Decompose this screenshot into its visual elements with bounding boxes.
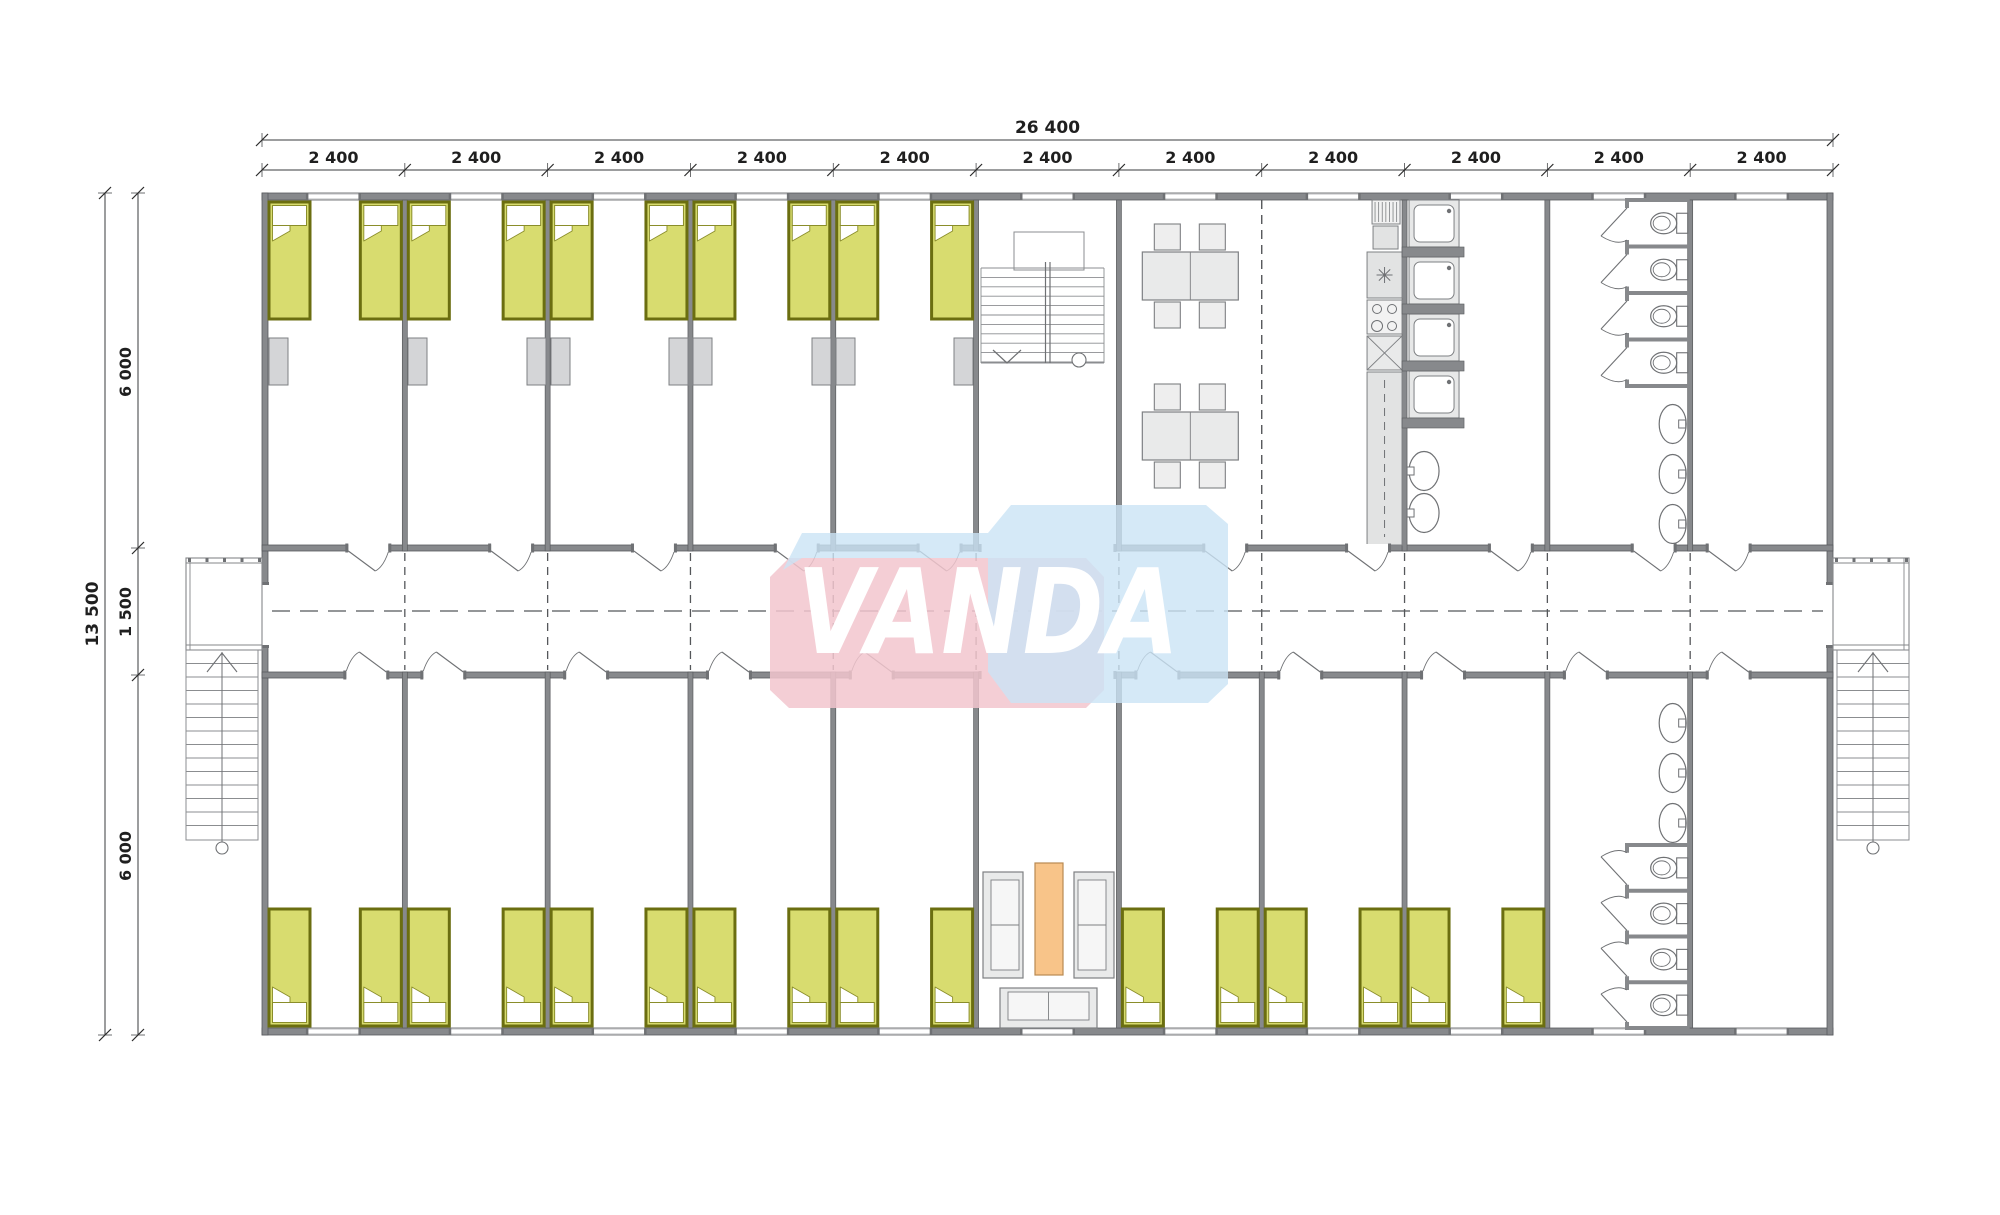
door-jamb	[1420, 671, 1423, 680]
window	[1307, 1029, 1359, 1034]
door-leaf	[634, 551, 661, 571]
window-jamb	[1787, 1028, 1790, 1035]
stall-door-arc	[1601, 376, 1627, 382]
door-jamb	[774, 544, 777, 553]
stall-partition	[1625, 1026, 1690, 1030]
door-jamb	[1606, 671, 1609, 680]
window-jamb	[1306, 1028, 1309, 1035]
window-jamb	[1501, 1028, 1504, 1035]
window	[593, 1029, 645, 1034]
interior-wall-bottom	[831, 672, 836, 1028]
window-jamb	[1163, 1028, 1166, 1035]
pillow	[935, 1003, 969, 1023]
door-arc	[518, 552, 531, 571]
window-jamb	[1734, 1028, 1737, 1035]
window-jamb	[787, 193, 790, 200]
porch	[186, 558, 262, 650]
door-arc	[1709, 652, 1722, 671]
pillow	[507, 206, 541, 226]
wardrobe	[693, 338, 712, 385]
rail-post	[1853, 558, 1856, 562]
window-jamb	[358, 1028, 361, 1035]
window-jamb	[449, 193, 452, 200]
door-erase	[634, 544, 674, 552]
interior-wall-bottom	[1402, 672, 1407, 1028]
window-jamb	[930, 1028, 933, 1035]
pillow	[840, 1003, 874, 1023]
door-jamb	[1674, 544, 1677, 553]
stall-partition	[1625, 980, 1690, 984]
window-jamb	[1020, 193, 1023, 200]
window-jamb	[644, 1028, 647, 1035]
chair	[1199, 224, 1225, 250]
stall-wall	[1625, 293, 1629, 301]
door-jamb	[388, 544, 391, 553]
window-jamb	[1215, 1028, 1218, 1035]
window-jamb	[1163, 193, 1166, 200]
dimension-module: 2 400	[1308, 148, 1358, 167]
window-jamb	[1501, 193, 1504, 200]
stall-door	[1601, 857, 1627, 885]
shower-partition	[1402, 247, 1464, 257]
door-jamb	[488, 544, 491, 553]
door-jamb	[706, 671, 709, 680]
window	[879, 1029, 931, 1034]
window-jamb	[358, 193, 361, 200]
stair-pole	[216, 842, 228, 854]
window-jamb	[501, 193, 504, 200]
stall-door-arc	[1601, 896, 1627, 902]
toilet-bowl	[1651, 352, 1677, 373]
basin-tap	[1679, 420, 1686, 428]
door-arc	[423, 652, 436, 671]
window	[1022, 194, 1074, 199]
door-leaf	[348, 551, 375, 571]
pillow	[364, 206, 398, 226]
wardrobe	[527, 338, 546, 385]
door-erase	[348, 544, 388, 552]
toilet-tank	[1677, 260, 1688, 280]
door-jamb	[1706, 544, 1709, 553]
door-arc	[1566, 652, 1579, 671]
window-jamb	[877, 193, 880, 200]
door-arc	[1661, 552, 1674, 571]
door-erase	[346, 671, 386, 679]
door-arc	[1423, 652, 1436, 671]
basin-tap	[1407, 467, 1414, 475]
door-erase	[1634, 544, 1674, 552]
basin-tap	[1679, 819, 1686, 827]
pillow	[935, 206, 969, 226]
basin-tap	[1679, 719, 1686, 727]
rail-post	[241, 558, 244, 562]
window-jamb	[1073, 193, 1076, 200]
interior-wall-top	[1545, 200, 1550, 551]
pillow	[507, 1003, 541, 1023]
window-jamb	[501, 1028, 504, 1035]
door-erase	[566, 671, 606, 679]
dimension-depth-segment: 1 500	[116, 587, 135, 637]
window	[1450, 1029, 1502, 1034]
interior-wall-bottom	[1545, 672, 1550, 1028]
window	[879, 194, 931, 199]
interior-wall-bottom	[1259, 672, 1264, 1028]
door-jamb	[1345, 544, 1348, 553]
door-arc	[346, 652, 359, 671]
door-leaf	[1491, 551, 1518, 571]
dimension-module: 2 400	[1451, 148, 1501, 167]
window-jamb	[306, 193, 309, 200]
pillow	[273, 206, 307, 226]
door-jamb	[1488, 544, 1491, 553]
interior-wall-bottom	[974, 672, 979, 1028]
dimension-module: 2 400	[880, 148, 930, 167]
dimension-module: 2 400	[1022, 148, 1072, 167]
wardrobe	[836, 338, 855, 385]
window	[593, 194, 645, 199]
stall-door	[1601, 903, 1627, 931]
door-arc	[1232, 552, 1245, 571]
window-jamb	[734, 1028, 737, 1035]
dimension-module: 2 400	[451, 148, 501, 167]
stall-door-arc	[1601, 329, 1627, 335]
door-jamb	[1320, 671, 1323, 680]
interior-wall-top	[402, 200, 407, 551]
door-jamb	[1388, 544, 1391, 553]
door-jamb	[1463, 671, 1466, 680]
floor-plan: VANDA26 4002 4002 4002 4002 4002 4002 40…	[0, 0, 2000, 1215]
door-erase	[491, 544, 531, 552]
window-jamb	[592, 1028, 595, 1035]
door-arc	[1736, 552, 1749, 571]
window	[736, 194, 788, 199]
pillow	[1506, 1003, 1540, 1023]
pillow	[555, 1003, 589, 1023]
window	[1736, 194, 1788, 199]
toilet-tank	[1677, 949, 1688, 969]
wardrobe	[269, 338, 288, 385]
interior-wall-top	[688, 200, 693, 551]
interior-wall-top	[974, 200, 979, 551]
stall-wall	[1625, 340, 1629, 348]
dimension-depth-segment: 6 000	[116, 831, 135, 881]
window-jamb	[930, 193, 933, 200]
pillow	[412, 1003, 446, 1023]
door-jamb	[1531, 544, 1534, 553]
stair-pole	[1072, 353, 1086, 367]
pillow	[1364, 1003, 1398, 1023]
pillow	[792, 206, 826, 226]
dimension-total-width: 26 400	[1015, 118, 1080, 138]
rail-post	[1905, 558, 1908, 562]
door-erase	[1709, 671, 1749, 679]
door-jamb	[345, 544, 348, 553]
door-erase	[1566, 671, 1606, 679]
interior-wall-bottom	[1688, 672, 1693, 1028]
dimension-module: 2 400	[594, 148, 644, 167]
door-erase	[1348, 544, 1388, 552]
stair-pole	[1867, 842, 1879, 854]
toilet-bowl	[1651, 213, 1677, 234]
toilet-bowl	[1651, 949, 1677, 970]
shower-partition	[1402, 418, 1464, 428]
pillow	[840, 206, 874, 226]
watermark-text: VANDA	[797, 543, 1179, 681]
window	[1164, 194, 1216, 199]
toilet-tank	[1677, 306, 1688, 326]
rail-post	[258, 558, 261, 562]
dimension-module: 2 400	[1594, 148, 1644, 167]
door-erase	[1280, 671, 1320, 679]
stall-wall	[1625, 200, 1629, 208]
dimension-total-depth: 13 500	[83, 581, 103, 646]
pillow	[412, 206, 446, 226]
window-jamb	[1306, 193, 1309, 200]
door-jamb	[749, 671, 752, 680]
door-jamb	[1706, 671, 1709, 680]
door-leaf	[1634, 551, 1661, 571]
stall-door-arc	[1601, 988, 1627, 994]
window-jamb	[734, 193, 737, 200]
kitchen-sink	[1373, 226, 1398, 249]
door-erase	[1709, 544, 1749, 552]
door-jamb	[674, 544, 677, 553]
door-jamb	[463, 671, 466, 680]
window	[1736, 1029, 1788, 1034]
toilet-tank	[1677, 213, 1688, 233]
shower-drain	[1447, 323, 1451, 327]
toilet-tank	[1677, 353, 1688, 373]
stall-door-arc	[1601, 283, 1627, 289]
window-jamb	[1358, 193, 1361, 200]
window-jamb	[1591, 1028, 1594, 1035]
stall-partition	[1625, 935, 1690, 939]
door-jamb	[1563, 671, 1566, 680]
wardrobe	[812, 338, 831, 385]
window	[1450, 194, 1502, 199]
chair	[1199, 384, 1225, 410]
window-jamb	[1591, 193, 1594, 200]
door-jamb	[1631, 544, 1634, 553]
stall-door	[1601, 948, 1627, 976]
interior-wall-top	[1116, 200, 1121, 551]
rail-post	[1870, 558, 1873, 562]
door-jamb	[1245, 544, 1248, 553]
door-arc	[375, 552, 388, 571]
window	[1307, 194, 1359, 199]
stair-landing	[1014, 232, 1084, 270]
stall-partition	[1625, 198, 1690, 202]
door-leaf	[1348, 551, 1375, 571]
basin-tap	[1679, 769, 1686, 777]
shower-partition	[1402, 304, 1464, 314]
door-jamb	[420, 671, 423, 680]
shower-drain	[1447, 266, 1451, 270]
pillow	[1269, 1003, 1303, 1023]
door-jamb	[631, 544, 634, 553]
stall-door-arc	[1601, 942, 1627, 948]
window-jamb	[1215, 193, 1218, 200]
window-jamb	[787, 1028, 790, 1035]
basin-tap	[1407, 509, 1414, 517]
door-jamb	[1749, 671, 1752, 680]
pillow	[364, 1003, 398, 1023]
door-jamb	[1749, 544, 1752, 553]
floor-plan-canvas: VANDA26 4002 4002 4002 4002 4002 4002 40…	[0, 0, 2000, 1215]
stall-wall	[1625, 1022, 1629, 1028]
door-leaf	[359, 652, 386, 672]
shower-drain	[1447, 380, 1451, 384]
chair	[1154, 384, 1180, 410]
door-jamb	[606, 671, 609, 680]
wardrobe	[551, 338, 570, 385]
window-jamb	[592, 193, 595, 200]
stall-wall	[1625, 247, 1629, 255]
interior-wall-bottom	[688, 672, 693, 1028]
door-leaf	[579, 652, 606, 672]
toilet-bowl	[1651, 306, 1677, 327]
window-jamb	[449, 1028, 452, 1035]
door-arc	[661, 552, 674, 571]
window-jamb	[1734, 193, 1737, 200]
wardrobe	[954, 338, 973, 385]
pillow	[273, 1003, 307, 1023]
pillow	[697, 1003, 731, 1023]
pillow	[555, 206, 589, 226]
rail-post	[206, 558, 209, 562]
dimension-module: 2 400	[737, 148, 787, 167]
stall-door	[1601, 994, 1627, 1022]
stall-partition	[1625, 338, 1690, 342]
toilet-tank	[1677, 858, 1688, 878]
window	[736, 1029, 788, 1034]
pillow	[649, 1003, 683, 1023]
basin-tap	[1679, 520, 1686, 528]
toilet-bowl	[1651, 995, 1677, 1016]
rail-post	[188, 558, 191, 562]
toilet-bowl	[1651, 903, 1677, 924]
interior-wall-top	[831, 200, 836, 551]
porch	[1833, 558, 1909, 650]
pillow	[1412, 1003, 1446, 1023]
window	[1164, 1029, 1216, 1034]
stall-door-arc	[1601, 851, 1627, 857]
pillow	[649, 206, 683, 226]
window-jamb	[1073, 1028, 1076, 1035]
interior-wall-bottom	[1116, 672, 1121, 1028]
door-arc	[566, 652, 579, 671]
stall-partition	[1625, 384, 1690, 388]
stall-partition	[1625, 843, 1690, 847]
window-jamb	[644, 193, 647, 200]
shower-drain	[1447, 209, 1451, 213]
wardrobe	[408, 338, 427, 385]
stall-door	[1601, 208, 1627, 236]
window-jamb	[1020, 1028, 1023, 1035]
dimension-depth-segment: 6 000	[116, 347, 135, 397]
door-leaf	[1293, 652, 1320, 672]
door-erase	[709, 671, 749, 679]
toilet-bowl	[1651, 857, 1677, 878]
dimension-module: 2 400	[308, 148, 358, 167]
door-arc	[709, 652, 722, 671]
door-arc	[1518, 552, 1531, 571]
door-leaf	[722, 652, 749, 672]
door-leaf	[1579, 652, 1606, 672]
window	[450, 1029, 502, 1034]
door-leaf	[1436, 652, 1463, 672]
stall-door	[1601, 255, 1627, 283]
chair	[1199, 462, 1225, 488]
rail-post	[1888, 558, 1891, 562]
stall-wall	[1625, 931, 1629, 937]
interior-wall-bottom	[402, 672, 407, 1028]
dimension-module: 2 400	[1165, 148, 1215, 167]
door-jamb	[563, 671, 566, 680]
window-jamb	[877, 1028, 880, 1035]
wardrobe	[669, 338, 688, 385]
window-jamb	[306, 1028, 309, 1035]
chair	[1154, 462, 1180, 488]
chair	[1199, 302, 1225, 328]
stall-door	[1601, 301, 1627, 329]
door-jamb	[1277, 671, 1280, 680]
window-jamb	[1448, 193, 1451, 200]
door-arc	[1375, 552, 1388, 571]
pillow	[1221, 1003, 1255, 1023]
window-jamb	[1358, 1028, 1361, 1035]
basin-tap	[1679, 470, 1686, 478]
pillow	[792, 1003, 826, 1023]
interior-wall-bottom	[545, 672, 550, 1028]
door-erase	[1491, 544, 1531, 552]
door-erase	[423, 671, 463, 679]
toilet-tank	[1677, 995, 1688, 1015]
window	[450, 194, 502, 199]
door-leaf	[491, 551, 518, 571]
stall-partition	[1625, 889, 1690, 893]
stall-partition	[1625, 291, 1690, 295]
pillow	[697, 206, 731, 226]
window-jamb	[1448, 1028, 1451, 1035]
door-leaf	[436, 652, 463, 672]
interior-wall-top	[1688, 200, 1693, 551]
pillow	[1126, 1003, 1160, 1023]
window	[307, 1029, 359, 1034]
stall-door	[1601, 348, 1627, 376]
toilet-bowl	[1651, 259, 1677, 280]
window-jamb	[1787, 193, 1790, 200]
window	[307, 194, 359, 199]
dimension-module: 2 400	[1737, 148, 1787, 167]
door-leaf	[1722, 652, 1749, 672]
door-jamb	[531, 544, 534, 553]
shower-partition	[1402, 361, 1464, 371]
stall-partition	[1625, 245, 1690, 249]
stall-door-arc	[1601, 236, 1627, 242]
door-jamb	[386, 671, 389, 680]
door-jamb	[343, 671, 346, 680]
coffee-table	[1035, 863, 1063, 975]
chair	[1154, 224, 1180, 250]
rail-post	[1835, 558, 1838, 562]
window	[1022, 1029, 1074, 1034]
chair	[1154, 302, 1180, 328]
door-leaf	[1709, 551, 1736, 571]
stall-wall	[1625, 885, 1629, 891]
door-arc	[1280, 652, 1293, 671]
door-erase	[1423, 671, 1463, 679]
